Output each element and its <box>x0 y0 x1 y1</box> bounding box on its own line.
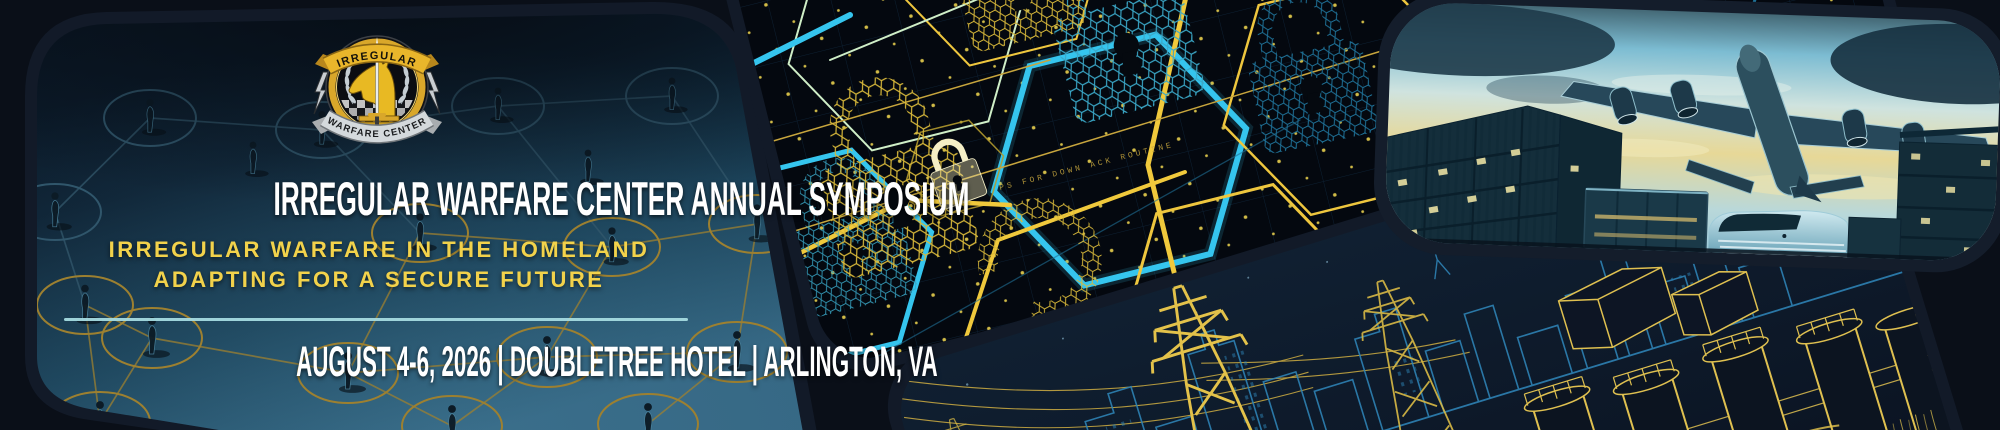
banner-collage: PS FOR DOWN ACK ROUTINE <box>0 0 2000 430</box>
cargo-trailer <box>1584 188 1708 252</box>
people-network-panel <box>0 0 830 430</box>
symposium-banner: PS FOR DOWN ACK ROUTINE <box>0 0 2000 430</box>
